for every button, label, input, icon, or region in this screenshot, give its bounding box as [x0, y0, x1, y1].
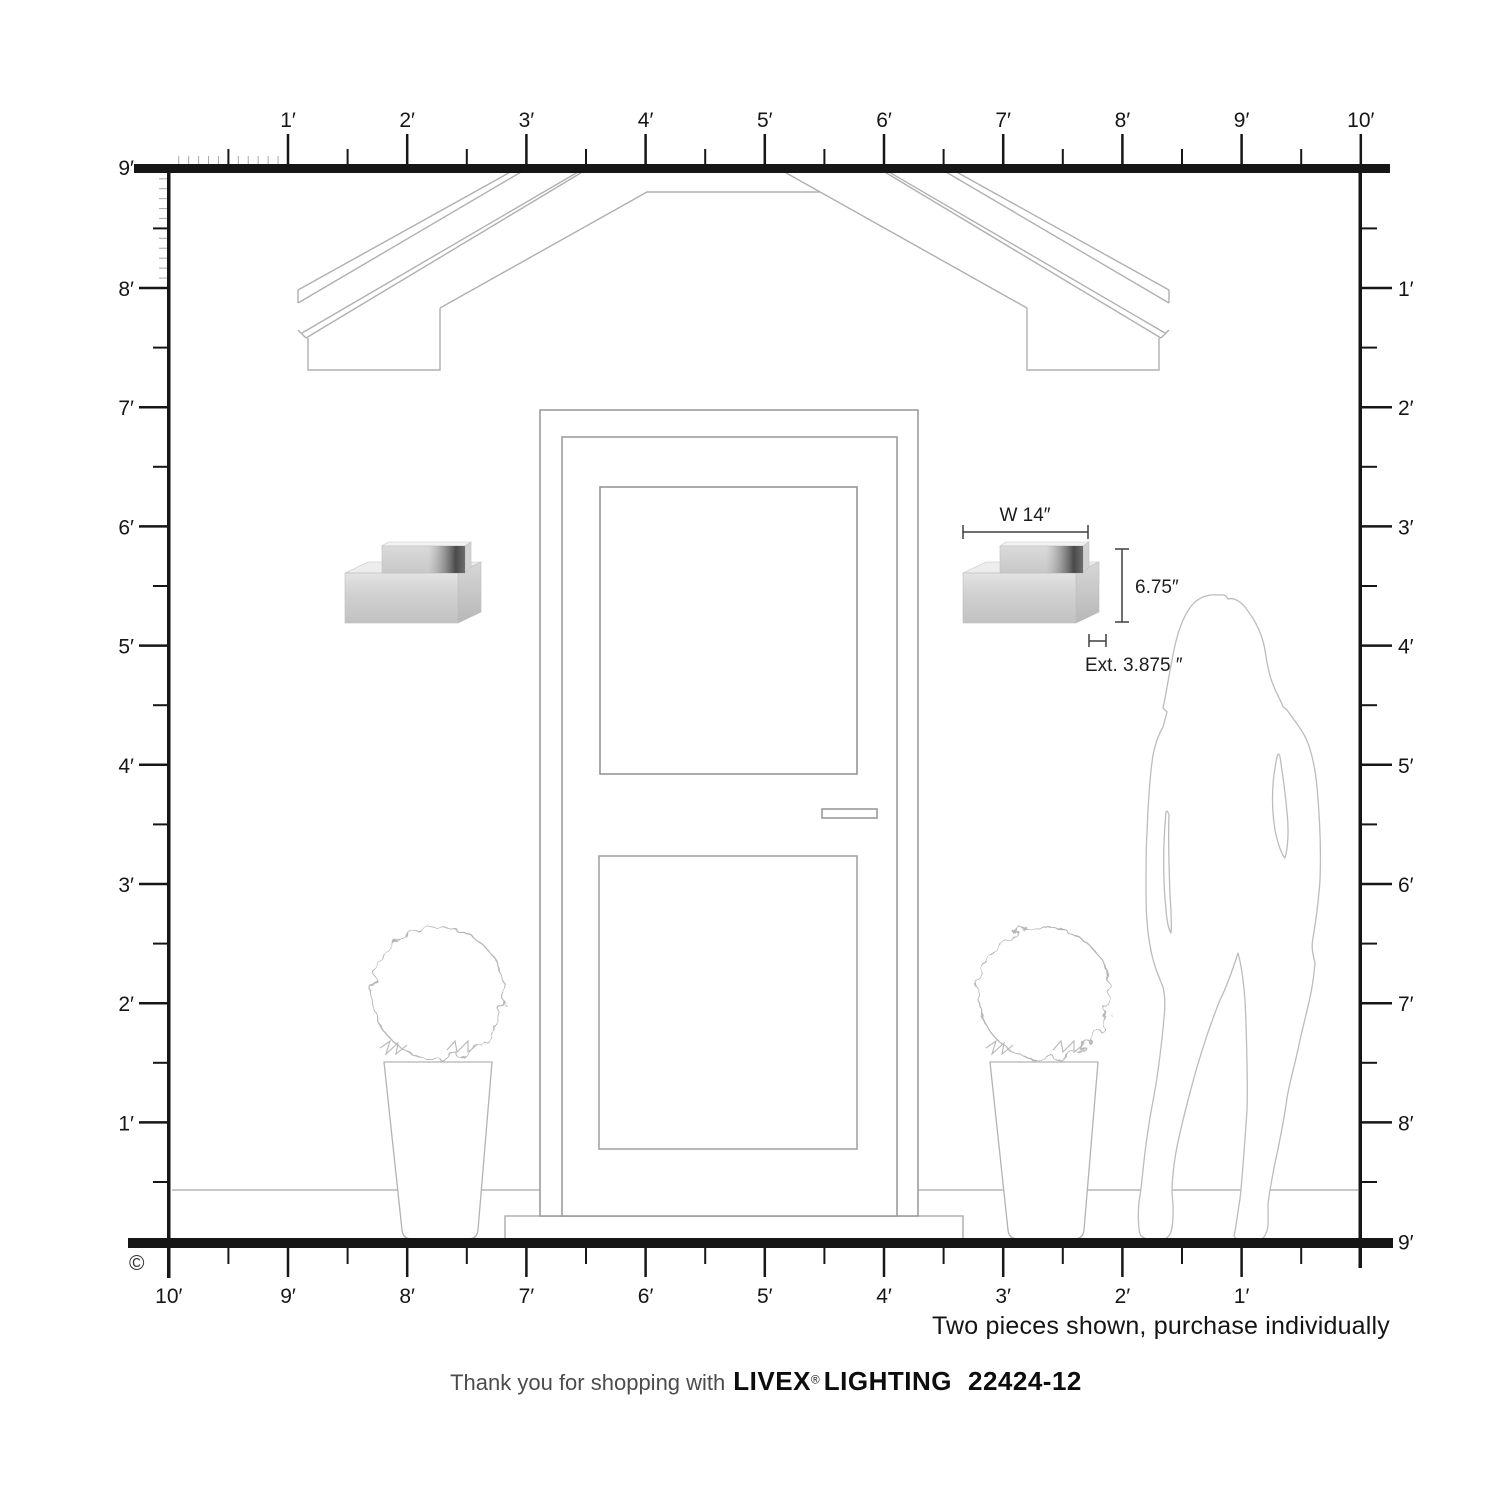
roof-outline — [298, 165, 1169, 370]
ruler-label: 7′ — [1398, 993, 1414, 1016]
woman-silhouette — [1138, 595, 1320, 1241]
ruler-label: 5′ — [1398, 755, 1414, 778]
ruler-label: 3′ — [519, 109, 535, 132]
ruler-label: 2′ — [118, 993, 134, 1016]
ruler-label: 8′ — [399, 1285, 415, 1308]
brand-name: LIVEX — [733, 1366, 811, 1396]
ruler-label: 9′ — [118, 157, 134, 180]
thank-you-line: Thank you for shopping withLIVEX®LIGHTIN… — [0, 1366, 1500, 1397]
front-door — [540, 410, 918, 1216]
product-scale-diagram: W 14″ 6.75″ Ext. 3.875 ″ 1′2′3′4′5′6′7′8… — [0, 0, 1500, 1500]
width-dimension-label: W 14″ — [999, 505, 1050, 526]
ruler-label: 2′ — [399, 109, 415, 132]
ruler-label: 3′ — [1398, 516, 1414, 539]
ruler-label: 1′ — [280, 109, 296, 132]
ruler-label: 10′ — [1347, 109, 1374, 132]
ruler-label: 6′ — [118, 516, 134, 539]
planter-left-group — [372, 927, 504, 1239]
registered-trademark-icon: ® — [811, 1373, 820, 1387]
ruler-label: 1′ — [1398, 278, 1414, 301]
wall-sconce-right — [963, 542, 1099, 623]
planter-left — [384, 1062, 492, 1239]
ruler-label: 10′ — [155, 1285, 182, 1308]
ruler-label: 8′ — [1398, 1112, 1414, 1135]
ruler-label: 6′ — [638, 1285, 654, 1308]
ruler-label: 7′ — [995, 109, 1011, 132]
ruler-label: 5′ — [757, 1285, 773, 1308]
door-lower-panel — [599, 856, 857, 1149]
thanks-prefix: Thank you for shopping with — [450, 1370, 725, 1395]
ruler-label: 3′ — [995, 1285, 1011, 1308]
ruler-label: 9′ — [280, 1285, 296, 1308]
planter-right-group — [978, 927, 1110, 1239]
topiary-left — [372, 927, 504, 1059]
ruler-right: 1′2′3′4′5′6′7′8′9′ — [1359, 164, 1414, 1268]
planter-right — [990, 1062, 1098, 1239]
ruler-label: 7′ — [519, 1285, 535, 1308]
ruler-left: 9′8′7′6′5′4′3′2′1′ — [118, 157, 170, 1278]
wall-sconce-left — [345, 542, 481, 623]
ruler-label: 4′ — [876, 1285, 892, 1308]
ruler-label: 1′ — [1234, 1285, 1250, 1308]
ruler-bottom: 10′9′8′7′6′5′4′3′2′1′ — [128, 1238, 1393, 1308]
ruler-label: 3′ — [118, 874, 134, 897]
ruler-top: 1′2′3′4′5′6′7′8′9′10′ — [134, 109, 1390, 173]
ruler-label: 7′ — [118, 397, 134, 420]
height-dimension — [1115, 549, 1129, 622]
ruler-label: 1′ — [118, 1112, 134, 1135]
purchase-note: Two pieces shown, purchase individually — [932, 1312, 1390, 1341]
topiary-right — [978, 927, 1110, 1059]
ruler-label: 6′ — [876, 109, 892, 132]
copyright-icon: © — [129, 1252, 144, 1276]
width-dimension — [963, 525, 1088, 539]
brand-suffix: LIGHTING — [824, 1366, 952, 1396]
ruler-label: 5′ — [118, 636, 134, 659]
door-handle — [822, 809, 877, 818]
ruler-label: 4′ — [638, 109, 654, 132]
height-dimension-label: 6.75″ — [1135, 577, 1179, 598]
extension-dimension-label: Ext. 3.875 ″ — [1085, 655, 1183, 676]
ruler-label: 4′ — [118, 755, 134, 778]
ruler-label: 8′ — [118, 278, 134, 301]
door-window-panel — [600, 487, 857, 774]
extension-dimension — [1089, 634, 1106, 647]
ruler-label: 2′ — [1115, 1285, 1131, 1308]
ruler-label: 9′ — [1398, 1232, 1414, 1255]
scale-diagram-svg: W 14″ 6.75″ Ext. 3.875 ″ 1′2′3′4′5′6′7′8… — [0, 0, 1500, 1500]
model-number: 22424-12 — [968, 1366, 1082, 1396]
ruler-label: 2′ — [1398, 397, 1414, 420]
ruler-label: 6′ — [1398, 874, 1414, 897]
ruler-label: 5′ — [757, 109, 773, 132]
ruler-label: 4′ — [1398, 636, 1414, 659]
ruler-label: 8′ — [1115, 109, 1131, 132]
ruler-label: 9′ — [1234, 109, 1250, 132]
